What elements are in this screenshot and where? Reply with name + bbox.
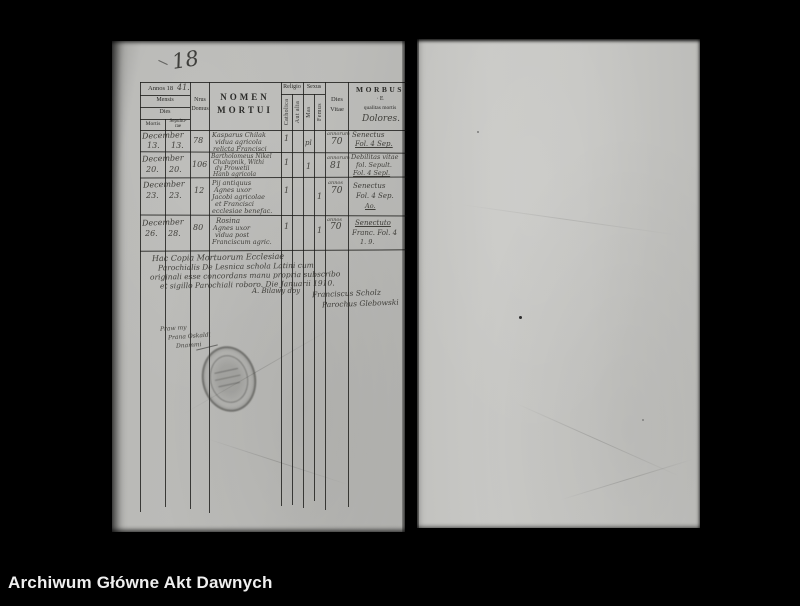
header-annos-handwritten: 41. [177, 83, 190, 92]
header-morbus-handwritten: Dolores. [362, 114, 400, 124]
header-dies: Dies [160, 109, 171, 115]
paper-speck [642, 419, 644, 421]
header-femina: Femus [317, 103, 323, 121]
header-aut-alia: Aut alia [295, 101, 301, 123]
paper-crease [206, 438, 349, 485]
header-sexus: Sexus [307, 84, 321, 90]
header-mensis: Mensis [156, 97, 173, 103]
header-nrus-domus: Nrus [194, 97, 206, 103]
right-page [417, 39, 700, 528]
header-mortis: Mortis [146, 121, 161, 127]
paper-speck [519, 316, 522, 319]
archive-caption: Archiwum Główne Akt Dawnych [8, 573, 273, 593]
header-nomen-mortui: NOMEN [220, 92, 270, 102]
folio-number: 18 [170, 46, 200, 74]
header-religio: Religio [283, 84, 301, 90]
paper-crease [560, 459, 694, 501]
book-spine [402, 38, 419, 533]
header-morbus: MORBUS [356, 85, 404, 94]
paper-crease [515, 402, 680, 476]
header-catholica: Catholica [284, 99, 290, 126]
paper-crease [458, 204, 676, 236]
scan-viewport: 18 Annos 18 41. Mensis Dies Mortis Sepul… [0, 0, 800, 606]
header-mas: Mas [306, 106, 312, 118]
header-dies-vitae: Dies [331, 96, 343, 103]
header-annos: Annos 18 [148, 85, 173, 92]
paper-speck [477, 131, 479, 133]
